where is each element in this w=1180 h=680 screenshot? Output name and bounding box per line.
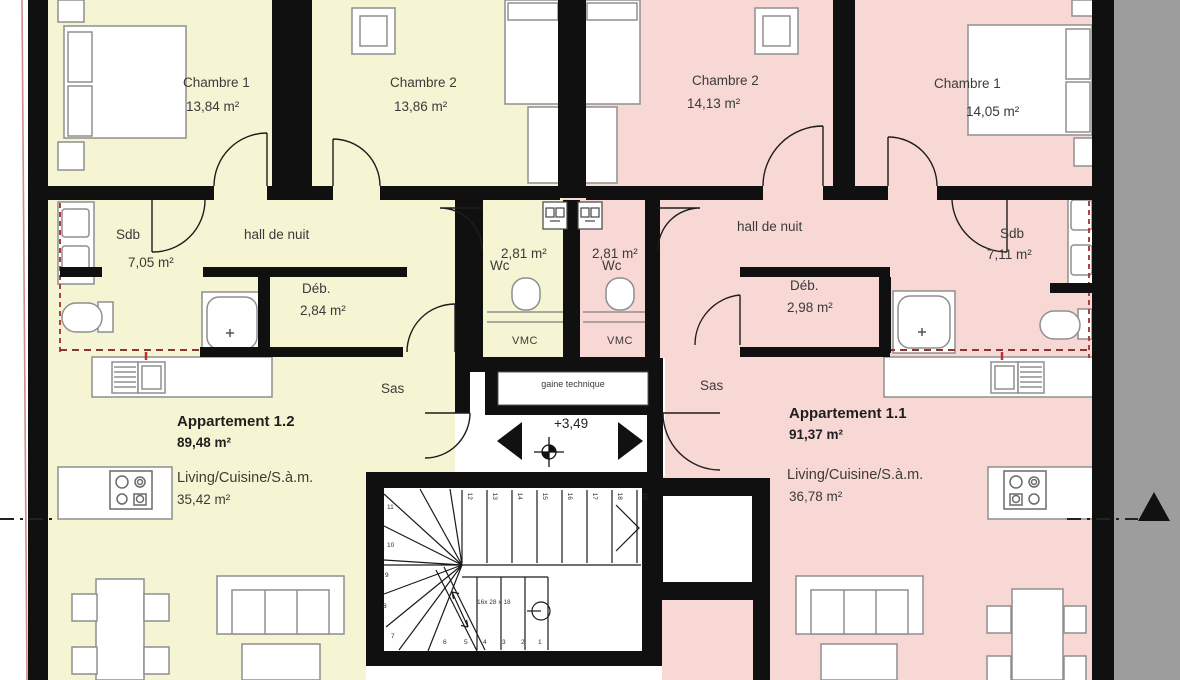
stair-step-number: 5 — [464, 640, 468, 647]
shower — [893, 291, 955, 353]
sofa — [796, 576, 923, 634]
room-label-deb-right: Déb. — [790, 279, 819, 293]
kitchen-counter — [92, 357, 272, 397]
stair-step-number: 17 — [590, 493, 597, 500]
room-area-chambre2-left: 13,86 m² — [394, 100, 447, 114]
washbasin — [1068, 190, 1094, 284]
coffee-table — [242, 644, 320, 680]
apartment-title-left: Appartement 1.2 — [177, 414, 295, 430]
desk — [755, 8, 798, 54]
room-area-living-left: 35,42 m² — [177, 493, 230, 507]
stair-step-number: 14 — [515, 493, 522, 500]
stair-step-number: 16 — [565, 493, 572, 500]
stair-step-number: 1 — [538, 640, 542, 647]
shower — [202, 292, 262, 354]
toilet-icon — [1040, 309, 1092, 339]
stair-step-number: 18 — [615, 493, 622, 500]
room-area-chambre2-right: 14,13 m² — [687, 97, 740, 111]
stair-step-number: 19 — [640, 493, 647, 500]
room-label-chambre2-left: Chambre 2 — [390, 76, 457, 90]
room-label-chambre2-right: Chambre 2 — [692, 74, 759, 88]
room-label-sdb-left: Sdb — [116, 228, 140, 242]
room-area-living-right: 36,78 m² — [789, 490, 842, 504]
coffee-table — [821, 644, 897, 680]
sofa — [217, 576, 344, 634]
floorplan-drawing — [0, 0, 1180, 680]
room-label-living-right: Living/Cuisine/S.à.m. — [787, 468, 923, 483]
stair-step-number: 9 — [385, 573, 389, 580]
stair-step-number: 7 — [391, 634, 395, 641]
stair-dimension-note: 16x 28 x 18 — [477, 600, 511, 607]
room-area-sdb-left: 7,05 m² — [128, 256, 174, 270]
stair-step-number: 13 — [490, 493, 497, 500]
room-area-chambre1-left: 13,84 m² — [186, 100, 239, 114]
kitchen-counter — [884, 357, 1097, 397]
room-label-chambre1-right: Chambre 1 — [934, 77, 1001, 91]
stair-step-number: 4 — [483, 640, 487, 647]
stair-step-number: 6 — [443, 640, 447, 647]
stair-step-number: 15 — [540, 493, 547, 500]
room-label-chambre1-left: Chambre 1 — [183, 76, 250, 90]
room-label-hall-right: hall de nuit — [737, 220, 802, 234]
stair-step-number: 11 — [387, 505, 394, 512]
room-label-hall-left: hall de nuit — [244, 228, 309, 242]
stair-step-number: 10 — [387, 543, 394, 550]
room-label-deb-left: Déb. — [302, 282, 331, 296]
toilet-icon — [62, 302, 113, 332]
room-label-living-left: Living/Cuisine/S.à.m. — [177, 471, 313, 486]
stove-icon — [110, 471, 152, 509]
stair-step-number: 8 — [383, 604, 387, 611]
room-area-sdb-right: 7,11 m² — [987, 248, 1032, 262]
level-label: +3,49 — [554, 417, 588, 431]
stair-step-number: 2 — [521, 640, 525, 647]
room-label-sas-right: Sas — [700, 379, 723, 393]
room-label-wc-left: Wc — [490, 259, 510, 273]
room-label-vmc-left: VMC — [512, 336, 538, 348]
room-label-sdb-right: Sdb — [1000, 227, 1024, 241]
apartment-area-right: 91,37 m² — [789, 428, 843, 442]
stair-step-number: 12 — [465, 493, 472, 500]
room-label-wc-right: Wc — [602, 259, 622, 273]
floor-plan: Chambre 1 13,84 m² Chambre 2 13,86 m² Ch… — [0, 0, 1180, 680]
room-label-sas-left: Sas — [381, 382, 404, 396]
stove-icon — [1004, 471, 1046, 509]
apartment-title-right: Appartement 1.1 — [789, 406, 907, 422]
apartment-area-left: 89,48 m² — [177, 436, 231, 450]
elevator-shaft — [663, 496, 752, 582]
desk — [352, 8, 395, 54]
stair-step-number: 3 — [502, 640, 506, 647]
room-area-deb-left: 2,84 m² — [300, 304, 346, 318]
gaine-technique-label: gaine technique — [498, 380, 648, 389]
room-label-vmc-right: VMC — [607, 336, 633, 348]
room-area-deb-right: 2,98 m² — [787, 301, 833, 315]
room-area-chambre1-right: 14,05 m² — [966, 105, 1019, 119]
